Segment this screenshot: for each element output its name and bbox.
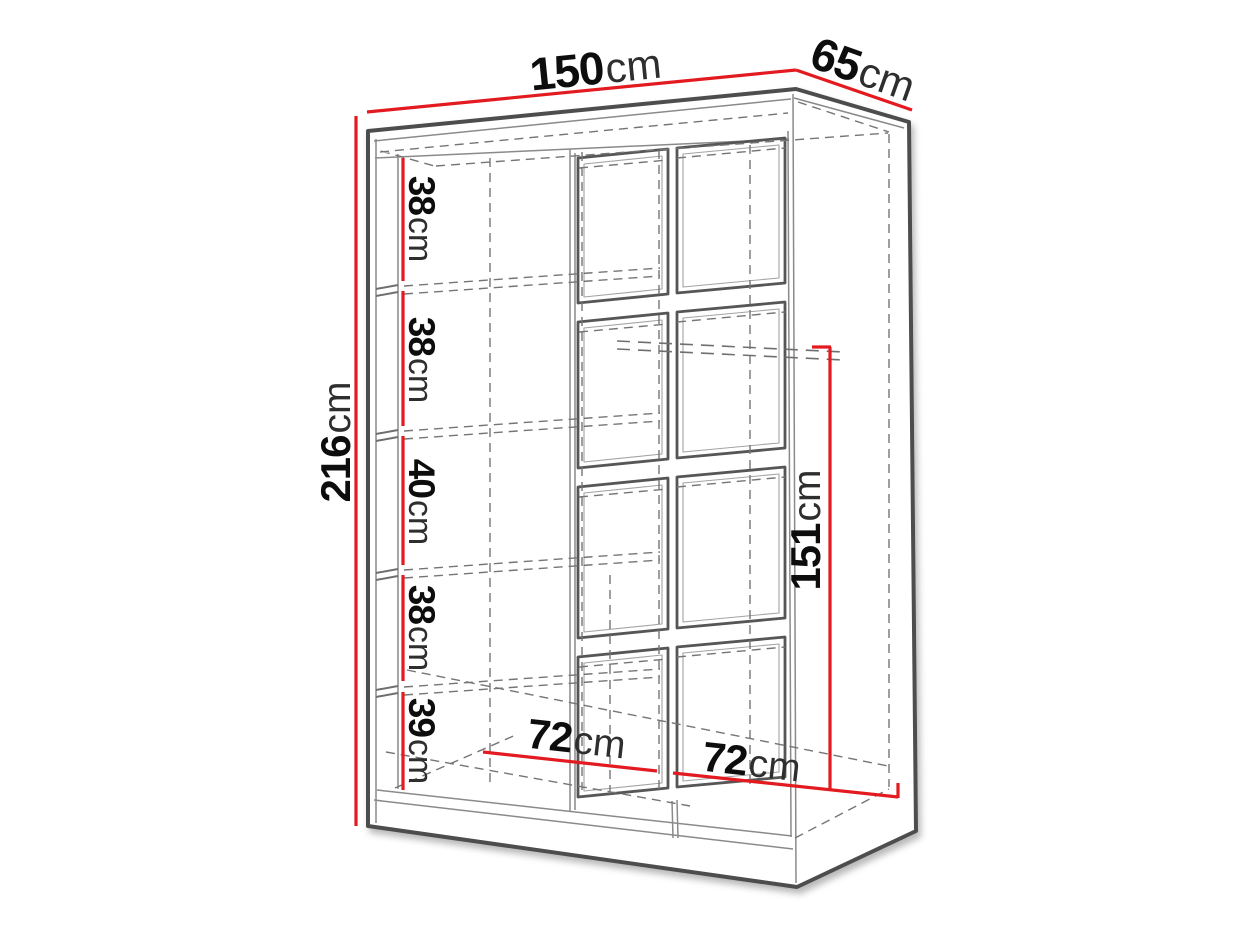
shelf-2-value: 38 [401, 317, 442, 357]
height-value: 216 [312, 435, 359, 502]
shelf-5-dimension-label: 39cm [401, 698, 442, 784]
inner-width-right-unit: cm [746, 742, 802, 791]
width-unit: cm [603, 40, 663, 92]
hanging-height-value: 151 [782, 523, 829, 591]
hanging-height-unit: cm [786, 469, 829, 521]
shelf-1-dimension-label: 38cm [401, 176, 442, 262]
shelf-4-unit: cm [401, 626, 439, 671]
shelf-5-unit: cm [401, 739, 439, 784]
depth-unit: cm [853, 47, 921, 110]
shelf-3-unit: cm [401, 500, 439, 545]
inner-width-left-unit: cm [571, 719, 627, 768]
shelf-2-unit: cm [401, 358, 439, 403]
diagram-canvas: 150cm 65cm 216cm 38cm 38cm 40cm 38cm 39c… [0, 0, 1258, 943]
inner-width-right-value: 72 [700, 733, 750, 785]
shelf-5-value: 39 [401, 698, 442, 738]
shelf-3-dimension-label: 40cm [401, 459, 442, 545]
height-unit: cm [316, 381, 359, 433]
width-dimension-label: 150cm [527, 36, 663, 101]
inner-width-left-value: 72 [525, 710, 575, 762]
wardrobe-dimension-diagram: 150cm 65cm 216cm 38cm 38cm 40cm 38cm 39c… [0, 0, 1258, 943]
shelf-2-dimension-label: 38cm [401, 317, 442, 403]
height-dimension-label: 216cm [312, 381, 359, 502]
shelf-1-unit: cm [401, 217, 439, 262]
shelf-3-value: 40 [401, 459, 442, 499]
width-value: 150 [527, 41, 606, 100]
shelf-1-value: 38 [401, 176, 442, 216]
hanging-height-dimension-label: 151cm [782, 469, 829, 590]
shelf-4-dimension-label: 38cm [401, 585, 442, 671]
shelf-4-value: 38 [401, 585, 442, 625]
wardrobe-outline [368, 89, 916, 887]
